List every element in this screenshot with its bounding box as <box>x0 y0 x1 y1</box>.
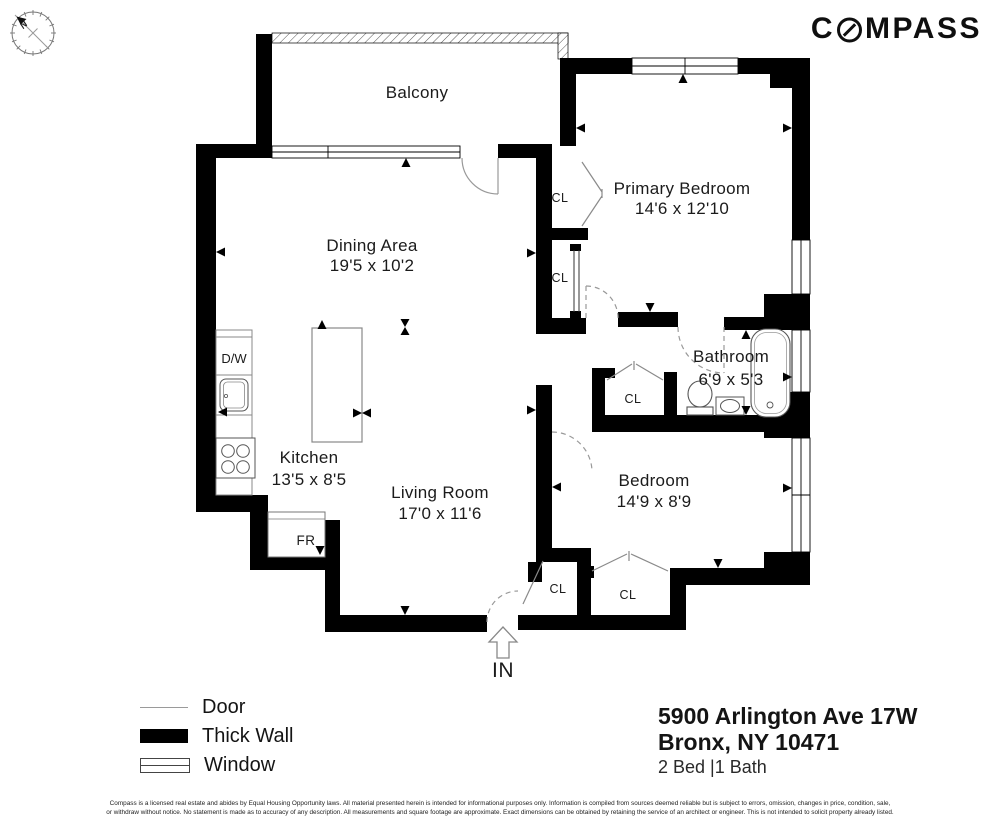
kitchen-sink <box>220 379 248 411</box>
kitchen-island <box>312 328 362 442</box>
room-dims-bathroom: 6'9 x 5'3 <box>699 370 764 389</box>
room-dims-dining: 19'5 x 10'2 <box>330 256 414 275</box>
legend-item-door: Door <box>140 697 293 717</box>
north-label: N <box>18 19 30 31</box>
dishwasher-label: D/W <box>221 351 247 366</box>
closet-label: CL <box>620 588 637 602</box>
compass-rose-icon: N <box>10 10 56 56</box>
window <box>792 240 810 294</box>
bifold-door <box>592 551 668 571</box>
closet-label: CL <box>550 582 567 596</box>
legend-label: Thick Wall <box>202 725 293 748</box>
floor-plan-page: C MPASS <box>0 0 1000 824</box>
disclaimer-line2: or withdraw without notice. No statement… <box>8 808 992 817</box>
room-label-primary-bedroom: Primary Bedroom <box>614 179 751 198</box>
room-dims-primary-bedroom: 14'6 x 12'10 <box>635 199 729 218</box>
window <box>792 438 810 552</box>
room-label-bedroom: Bedroom <box>618 471 689 490</box>
bifold-door <box>607 361 663 380</box>
legend: Door Thick Wall Window <box>140 697 293 775</box>
entry-door-arc <box>487 591 518 622</box>
closet-label: CL <box>552 271 569 285</box>
room-labels: Balcony Dining Area 19'5 x 10'2 Primary … <box>221 83 769 682</box>
disclaimer-line1: Compass is a licensed real estate and ab… <box>8 799 992 808</box>
closet-label: CL <box>552 191 569 205</box>
logo-text-suffix: MPASS <box>865 12 982 46</box>
legend-item-thick-wall: Thick Wall <box>140 726 293 746</box>
compass-logo: C MPASS <box>811 12 982 46</box>
room-dims-kitchen: 13'5 x 8'5 <box>272 470 347 489</box>
room-label-bathroom: Bathroom <box>693 347 769 366</box>
room-dims-bedroom: 14'9 x 8'9 <box>617 492 692 511</box>
beds-baths: 2 Bed |1 Bath <box>658 755 917 779</box>
window <box>272 146 460 158</box>
room-label-dining: Dining Area <box>326 236 417 255</box>
address-line2: Bronx, NY 10471 <box>658 729 917 755</box>
room-label-living-room: Living Room <box>391 483 489 502</box>
room-label-kitchen: Kitchen <box>280 448 339 467</box>
bifold-door <box>582 162 602 226</box>
disclaimer: Compass is a licensed real estate and ab… <box>8 799 992 817</box>
bathroom-sink <box>716 397 744 415</box>
thick-wall-swatch-icon <box>140 729 188 743</box>
listing-info: 5900 Arlington Ave 17W Bronx, NY 10471 2… <box>658 703 917 779</box>
entry-arrow-icon <box>489 627 517 658</box>
entry-label: IN <box>492 659 514 682</box>
window-swatch-icon <box>140 758 190 773</box>
room-dims-living-room: 17'0 x 11'6 <box>398 504 481 523</box>
stove <box>216 438 255 478</box>
balcony-door-arc <box>462 158 498 194</box>
closet-label: CL <box>625 392 642 406</box>
logo-text-prefix: C <box>811 12 835 46</box>
balcony-railing <box>272 33 568 59</box>
room-label-balcony: Balcony <box>386 83 449 102</box>
sliding-door <box>574 250 579 312</box>
window <box>632 58 738 74</box>
address-line1: 5900 Arlington Ave 17W <box>658 703 917 729</box>
door-swatch-icon <box>140 707 188 708</box>
fridge-label: FR <box>297 533 316 548</box>
primary-bedroom-door-arc <box>586 286 618 318</box>
legend-label: Window <box>204 754 275 777</box>
compass-logo-o-icon <box>836 16 863 43</box>
legend-item-window: Window <box>140 755 293 775</box>
bedroom-door-arc <box>552 432 592 472</box>
floor-plan: N <box>0 0 1000 690</box>
window <box>792 330 810 392</box>
legend-label: Door <box>202 696 245 719</box>
